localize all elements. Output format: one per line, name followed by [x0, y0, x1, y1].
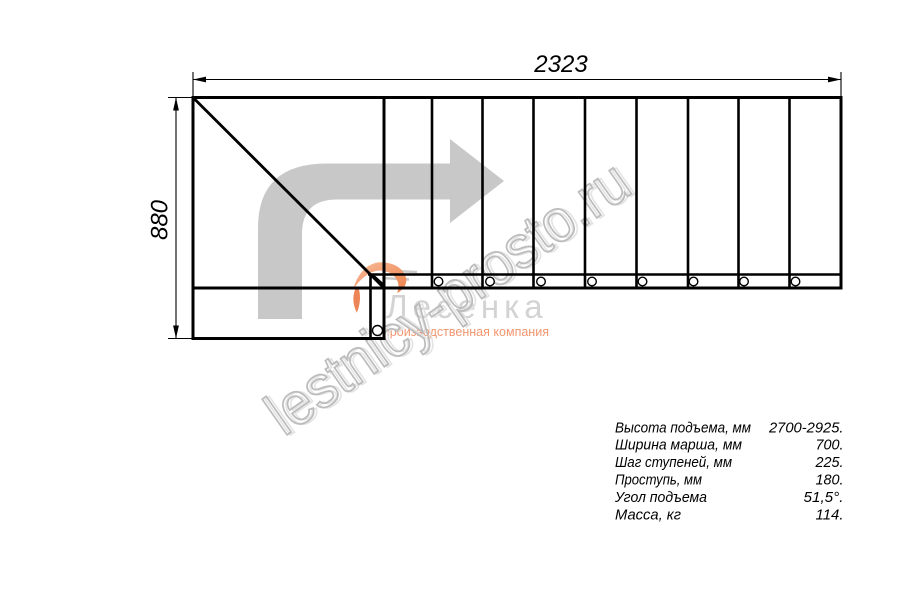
svg-text:51,5°.: 51,5°.	[804, 489, 844, 506]
svg-text:700.: 700.	[816, 437, 844, 454]
svg-text:Масса, кг: Масса, кг	[615, 506, 681, 523]
svg-text:225.: 225.	[815, 454, 844, 471]
svg-text:880: 880	[147, 199, 174, 240]
svg-text:Высота подъема, мм: Высота подъема, мм	[615, 419, 752, 436]
svg-text:Проступь, мм: Проступь, мм	[615, 472, 703, 489]
svg-text:114.: 114.	[816, 506, 844, 523]
svg-text:2700-2925.: 2700-2925.	[768, 419, 843, 436]
svg-text:Ширина марша, мм: Ширина марша, мм	[615, 437, 743, 454]
svg-text:2323: 2323	[533, 51, 588, 78]
svg-text:Угол подъема: Угол подъема	[614, 489, 707, 506]
svg-text:Шаг ступеней, мм: Шаг ступеней, мм	[615, 454, 733, 471]
svg-text:180.: 180.	[816, 472, 844, 489]
